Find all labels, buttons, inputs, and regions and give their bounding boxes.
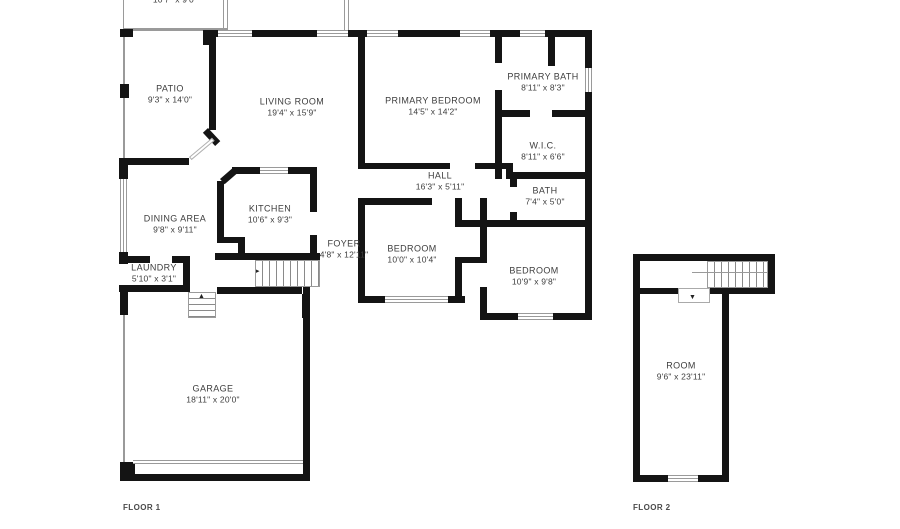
room-label-primary-bath: PRIMARY BATH 8'11" x 8'3" xyxy=(507,72,578,93)
garage-edge xyxy=(123,315,125,462)
wall-floor2-bottom xyxy=(698,475,729,482)
room-name: PRIMARY BATH xyxy=(507,72,578,82)
room-label-room: ROOM 9'6" x 23'11" xyxy=(657,361,706,382)
wall-floor2-top xyxy=(633,254,775,261)
wall-top xyxy=(490,30,520,37)
wall-bedroom1-bottom xyxy=(358,296,385,303)
room-dims: 8'11" x 8'3" xyxy=(507,83,578,93)
wall-primary-bath-stub xyxy=(548,37,555,66)
room-label-foyer: FOYER 4'8" x 12'11" xyxy=(320,239,369,260)
wall-patio-post xyxy=(120,84,129,98)
wall-bedroom2-bottom xyxy=(553,313,592,320)
room-dims: 16'3" x 5'11" xyxy=(416,182,465,192)
room-name: PATIO xyxy=(148,84,192,94)
room-label-primary-bedroom: PRIMARY BEDROOM 14'5" x 14'2" xyxy=(385,96,481,117)
room-name: FOYER xyxy=(320,239,369,249)
room-label-garage: GARAGE 18'11" x 20'0" xyxy=(186,384,240,405)
wall-thin xyxy=(123,0,124,29)
stairs-up-arrow-icon: ▲ xyxy=(198,293,205,300)
wall-closet xyxy=(455,257,462,303)
room-name: BEDROOM xyxy=(387,244,436,254)
wall-bedroom2-bottom xyxy=(480,313,518,320)
patio-edge xyxy=(133,29,205,31)
wall-kitchen-left xyxy=(217,181,224,239)
room-dims: 9'8" x 9'11" xyxy=(144,225,206,235)
room-dims: 7'4" x 5'0" xyxy=(525,197,564,207)
stairs-down-arrow-icon: ▼ xyxy=(689,294,696,301)
window xyxy=(520,30,545,37)
wall-wic-top xyxy=(552,110,592,117)
garage-door xyxy=(133,460,303,464)
room-label-laundry: LAUNDRY 5'10" x 3'1" xyxy=(131,263,177,284)
wall-right xyxy=(585,92,592,313)
wall-dining-corner xyxy=(119,158,128,179)
wall-top xyxy=(398,30,460,37)
room-name: LAUNDRY xyxy=(131,263,177,273)
wall-top xyxy=(252,30,317,37)
wall-dining-top xyxy=(119,158,189,165)
room-dims: 10'9" x 9'8" xyxy=(509,277,558,287)
wall-thin xyxy=(223,0,224,28)
stair-rail-line xyxy=(692,272,768,273)
wall-bath-left xyxy=(510,212,517,222)
wall-kitchen-bottom xyxy=(215,253,320,260)
room-dims: 10'0" x 10'4" xyxy=(387,255,436,265)
room-label-bedroom2: BEDROOM 10'9" x 9'8" xyxy=(509,266,558,287)
wall-floor2-mid xyxy=(640,288,678,294)
room-name: BATH xyxy=(525,186,564,196)
room-dims: 4'8" x 12'11" xyxy=(320,250,369,260)
window xyxy=(367,30,398,37)
window xyxy=(385,296,448,303)
wall-floor2-bottom xyxy=(633,475,668,482)
wall-laundry-bottom xyxy=(119,285,187,292)
window xyxy=(585,68,592,92)
window xyxy=(120,179,127,252)
window xyxy=(260,167,288,174)
room-name: HALL xyxy=(416,171,465,181)
window xyxy=(460,30,490,37)
window xyxy=(218,30,252,37)
room-label-kitchen: KITCHEN 10'6" x 9'3" xyxy=(248,204,292,225)
wall-floor2-room-right xyxy=(722,294,729,482)
floor2-staircase xyxy=(707,261,768,288)
wall-hall-bottom xyxy=(358,198,432,205)
room-name: KITCHEN xyxy=(248,204,292,214)
room-label-living: LIVING ROOM 19'4" x 15'9" xyxy=(260,97,324,118)
window xyxy=(668,475,698,482)
wall-bath-left xyxy=(510,179,517,187)
wall-patio-corner xyxy=(120,29,133,37)
room-label-bath: BATH 7'4" x 5'0" xyxy=(525,186,564,207)
wall-kitchen-right xyxy=(310,167,317,212)
wall-garage-left xyxy=(120,287,128,315)
wall-dining-corner xyxy=(119,252,128,264)
staircase xyxy=(255,260,320,287)
room-label-partial: 10'7" x 9'0" xyxy=(153,0,197,5)
room-dims: 9'3" x 14'0" xyxy=(148,95,192,105)
wall-primary-bedroom-left xyxy=(358,37,365,169)
wall-hall-top xyxy=(475,163,507,169)
window xyxy=(317,30,348,37)
room-label-patio: PATIO 9'3" x 14'0" xyxy=(148,84,192,105)
wall-primary-bath-left xyxy=(495,37,502,63)
wall-front xyxy=(217,287,302,294)
room-label-bedroom1: BEDROOM 10'0" x 10'4" xyxy=(387,244,436,265)
wall-hall-corner xyxy=(506,163,513,179)
room-dims: 5'10" x 3'1" xyxy=(131,274,177,284)
room-dims: 9'6" x 23'11" xyxy=(657,372,706,382)
stairs-direction-arrow-icon: ▸ xyxy=(256,268,260,275)
window xyxy=(518,313,553,320)
wall-thin xyxy=(348,0,349,33)
wall-thin xyxy=(344,0,345,33)
wall-thin xyxy=(227,0,228,28)
wall-closet xyxy=(480,198,487,259)
wall-closet-divider xyxy=(455,257,487,263)
wall-hall-top xyxy=(358,163,450,169)
room-name: GARAGE xyxy=(186,384,240,394)
room-name: ROOM xyxy=(657,361,706,371)
floor2-tag: FLOOR 2 xyxy=(633,503,670,512)
room-label-dining: DINING AREA 9'8" x 9'11" xyxy=(144,214,206,235)
wall-bedroom2-top xyxy=(455,220,592,227)
wall-wic-bottom xyxy=(508,172,592,179)
room-dims: 18'11" x 20'0" xyxy=(186,395,240,405)
room-label-wic: W.I.C. 8'11" x 6'6" xyxy=(521,141,565,162)
wall-top xyxy=(203,30,218,37)
wall-floor2-left xyxy=(633,254,640,482)
wall-wic-top xyxy=(502,110,530,117)
floor-plan: ▸ ▲ ▼ 10'7" x 9'0" PATIO 9'3" x 14'0" LI… xyxy=(0,0,900,529)
room-dims: 14'5" x 14'2" xyxy=(385,107,481,117)
wall-floor2-right xyxy=(768,254,775,294)
patio-door xyxy=(189,138,215,160)
room-name: DINING AREA xyxy=(144,214,206,224)
wall-garage-bottom xyxy=(120,474,310,481)
wall-living-left xyxy=(209,37,216,130)
room-label-hall: HALL 16'3" x 5'11" xyxy=(416,171,465,192)
wall-top xyxy=(348,30,367,37)
room-dims: 19'4" x 15'9" xyxy=(260,108,324,118)
wall-floor2-mid xyxy=(710,288,768,294)
room-name: LIVING ROOM xyxy=(260,97,324,107)
room-dims: 8'11" x 6'6" xyxy=(521,152,565,162)
room-dims: 10'7" x 9'0" xyxy=(153,0,197,5)
wall-right xyxy=(585,30,592,68)
room-name: W.I.C. xyxy=(521,141,565,151)
wall-garage-right xyxy=(303,287,310,481)
room-name: BEDROOM xyxy=(509,266,558,276)
floor1-tag: FLOOR 1 xyxy=(123,503,160,512)
room-dims: 10'6" x 9'3" xyxy=(248,215,292,225)
room-name: PRIMARY BEDROOM xyxy=(385,96,481,106)
